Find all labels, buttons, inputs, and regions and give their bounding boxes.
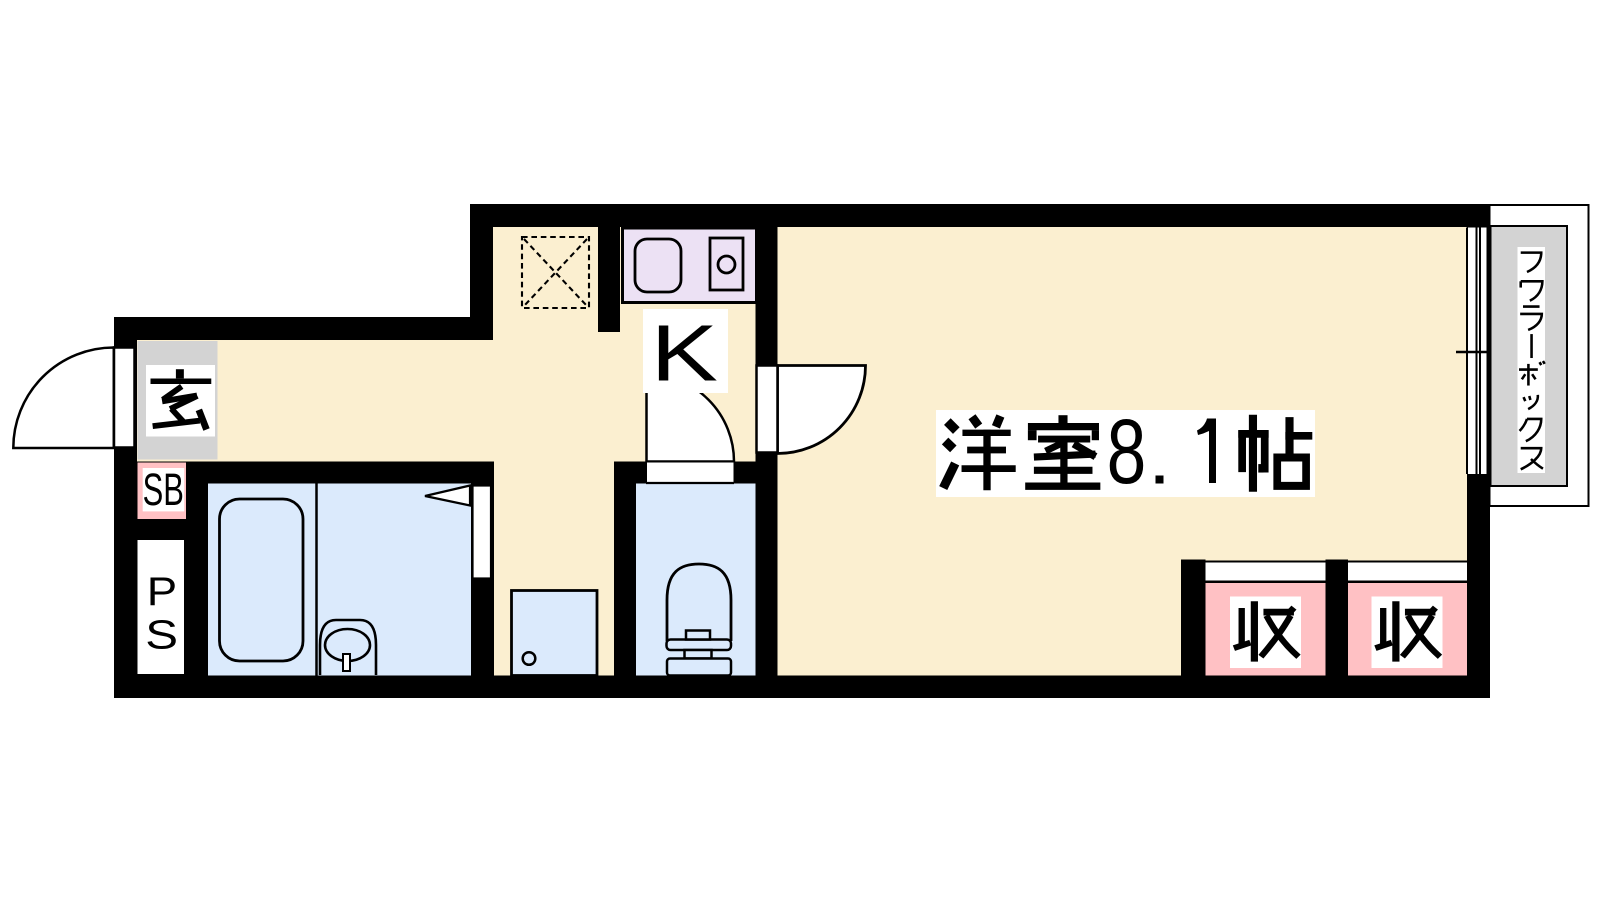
- svg-text:SB: SB: [143, 465, 184, 515]
- svg-text:P: P: [147, 570, 177, 615]
- svg-text:S: S: [145, 612, 178, 658]
- svg-text:K: K: [651, 309, 718, 398]
- svg-text:8: 8: [1107, 400, 1147, 503]
